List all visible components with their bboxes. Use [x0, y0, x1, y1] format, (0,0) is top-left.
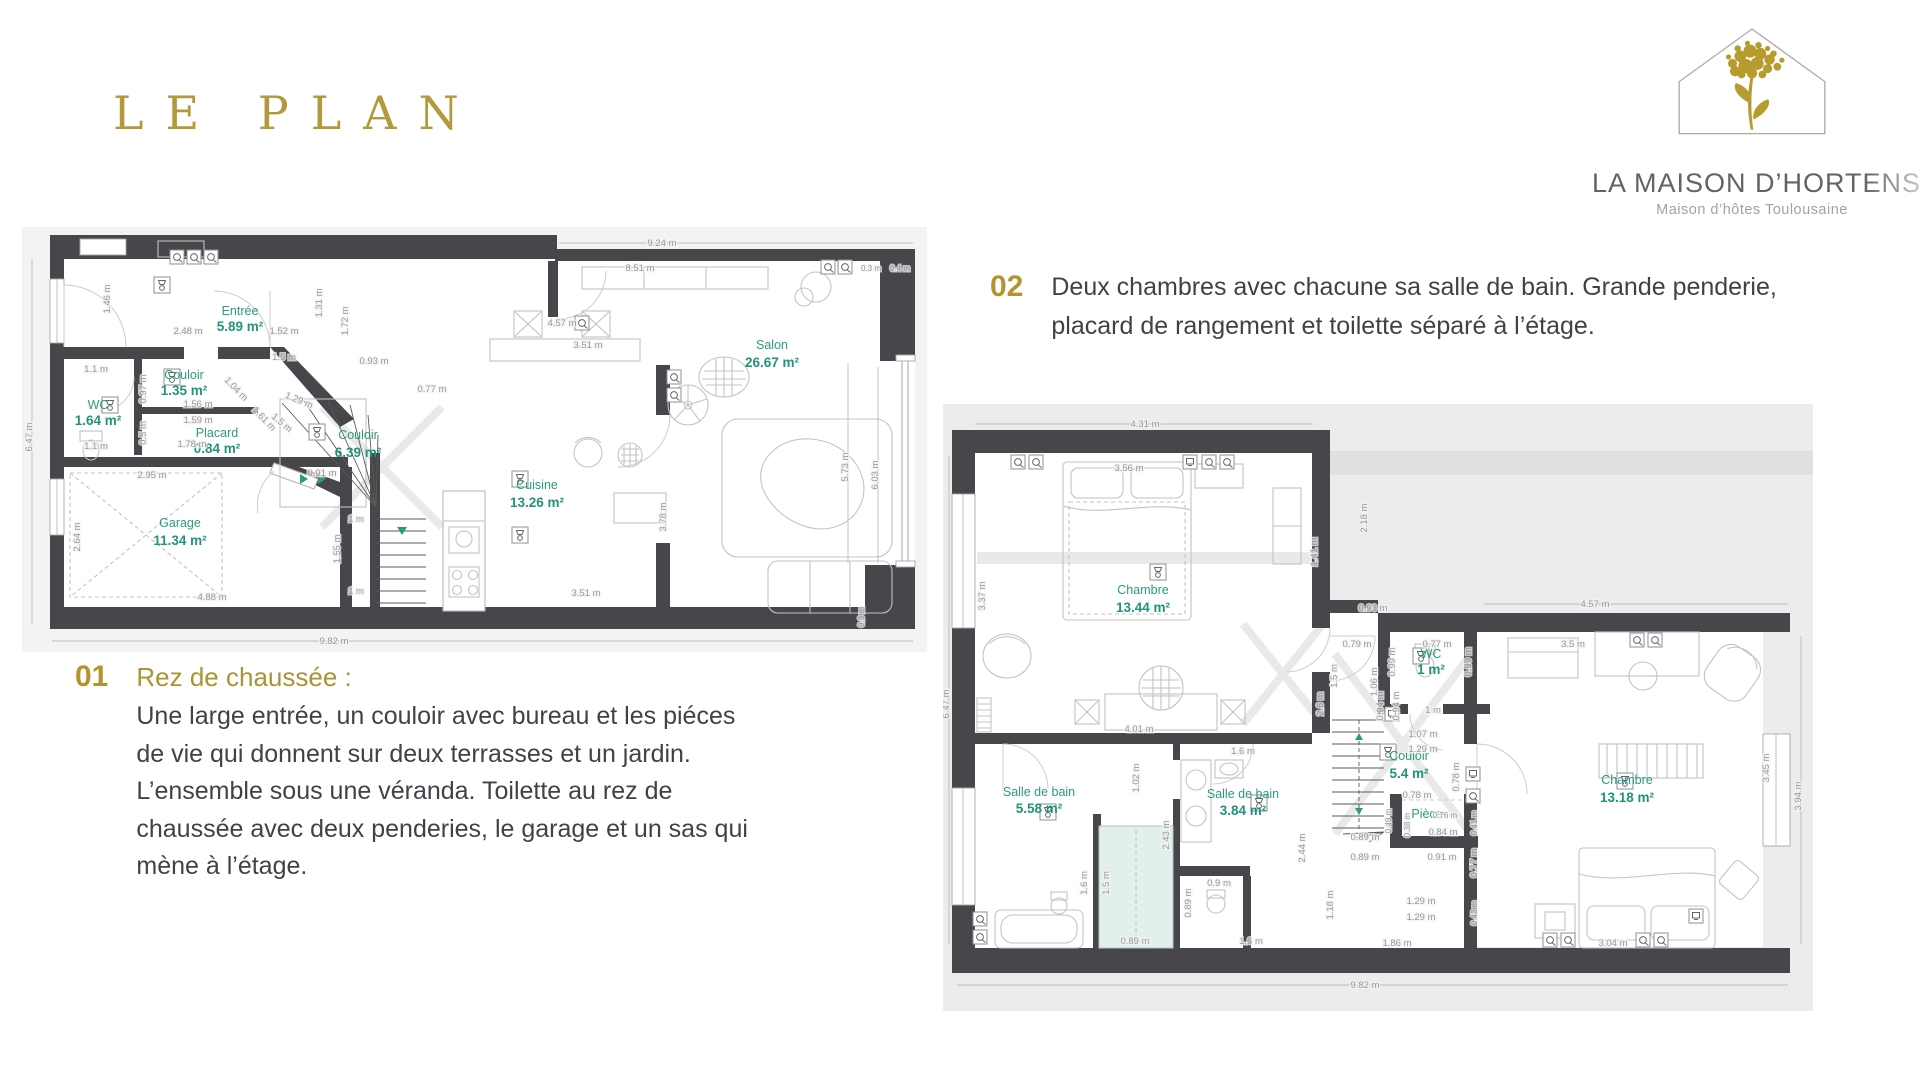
svg-text:1.64 m²: 1.64 m² [75, 413, 122, 428]
svg-text:1.6 m: 1.6 m [1231, 746, 1255, 757]
svg-text:1.46 m: 1.46 m [102, 284, 113, 313]
svg-text:2.95 m: 2.95 m [137, 470, 166, 481]
svg-text:3.94 m: 3.94 m [1793, 781, 1804, 810]
svg-text:9.82 m: 9.82 m [319, 636, 348, 647]
svg-text:Salon: Salon [756, 338, 788, 352]
outlet-icon [667, 388, 681, 402]
svg-text:4.31 m: 4.31 m [1130, 419, 1159, 430]
svg-text:9.82 m: 9.82 m [1350, 980, 1379, 991]
svg-text:0.97 m: 0.97 m [138, 374, 149, 403]
svg-text:6.03 m: 6.03 m [870, 460, 881, 489]
room-label-entree: Entrée5.89 m² [217, 304, 264, 334]
svg-text:0.84 m: 0.84 m [1428, 827, 1457, 838]
svg-text:4.57 m: 4.57 m [547, 318, 576, 329]
wicker-chair [1139, 666, 1183, 710]
svg-text:13.18 m²: 13.18 m² [1600, 790, 1655, 805]
svg-text:1.5 m: 1.5 m [272, 352, 296, 363]
svg-text:Salle de bain: Salle de bain [1003, 785, 1075, 799]
svg-text:Couloir: Couloir [164, 368, 204, 382]
svg-text:2.64 m: 2.64 m [72, 522, 83, 551]
svg-text:6.39 m²: 6.39 m² [335, 445, 382, 460]
svg-text:9.24 m: 9.24 m [647, 238, 676, 249]
svg-text:0.89 m: 0.89 m [1183, 888, 1194, 917]
svg-text:6.47 m: 6.47 m [24, 422, 35, 451]
outlet-icon [187, 250, 201, 264]
svg-text:1.31 m: 1.31 m [314, 288, 325, 317]
floor-plan-ground: Entrée5.89 m² Salon26.67 m² Couloir1.35 … [22, 227, 927, 657]
floor-plan-upstairs: Chambre13.44 m² WC1 m² Couloir5.4 m² Sal… [943, 404, 1813, 1016]
outlet-icon [575, 316, 589, 330]
svg-text:8.51 m: 8.51 m [625, 263, 654, 274]
stool [618, 443, 642, 467]
svg-text:Couloir: Couloir [338, 428, 378, 442]
outlet-icon [667, 370, 681, 384]
svg-text:5.89 m²: 5.89 m² [217, 319, 264, 334]
svg-text:Chambre: Chambre [1601, 773, 1652, 787]
svg-text:5.58 m²: 5.58 m² [1016, 801, 1063, 816]
svg-text:Garage: Garage [159, 516, 201, 530]
outlet-icon [1220, 455, 1234, 469]
outlet-icon [838, 260, 852, 274]
svg-text:1.78 m: 1.78 m [177, 439, 206, 450]
svg-text:3.51 m: 3.51 m [571, 588, 600, 599]
svg-text:1.1 m: 1.1 m [84, 364, 108, 375]
svg-text:3.51 m: 3.51 m [573, 340, 602, 351]
svg-text:Chambre: Chambre [1117, 583, 1168, 597]
kitchen-counter [443, 491, 485, 611]
svg-text:3.37 m: 3.37 m [977, 581, 988, 610]
svg-text:1.5 m: 1.5 m [1329, 664, 1340, 688]
svg-text:0.91 m: 0.91 m [1427, 852, 1456, 863]
svg-text:WC: WC [88, 398, 109, 412]
room-label-wc: WC1 m² [1417, 647, 1445, 677]
svg-text:1.52 m: 1.52 m [269, 326, 298, 337]
svg-text:1.5 m: 1.5 m [1101, 871, 1112, 895]
ceiling-light-icon [154, 277, 170, 293]
svg-text:3.56 m: 3.56 m [1114, 463, 1143, 474]
svg-text:1 m: 1 m [348, 514, 364, 525]
svg-text:2.44 m: 2.44 m [1297, 833, 1308, 862]
svg-text:5.73 m: 5.73 m [840, 452, 851, 481]
svg-text:1.6 m: 1.6 m [1239, 936, 1263, 947]
svg-text:1.29 m: 1.29 m [1406, 896, 1435, 907]
svg-text:Entrée: Entrée [222, 304, 259, 318]
ceiling-light-icon [309, 424, 325, 440]
svg-text:3.45 m: 3.45 m [1761, 753, 1772, 782]
svg-text:4.88 m: 4.88 m [197, 592, 226, 603]
svg-text:13.44 m²: 13.44 m² [1116, 600, 1171, 615]
svg-text:0.3 m: 0.3 m [857, 607, 866, 627]
svg-text:1.29 m: 1.29 m [1408, 744, 1437, 755]
svg-text:1.35 m²: 1.35 m² [161, 383, 208, 398]
svg-text:1.1 m: 1.1 m [84, 441, 108, 452]
outlet-icon [1011, 455, 1025, 469]
svg-text:1.59 m: 1.59 m [183, 415, 212, 426]
svg-text:1.07 m: 1.07 m [1408, 729, 1437, 740]
svg-text:1 m: 1 m [1425, 705, 1441, 716]
ceiling-light-icon [512, 527, 528, 543]
ceiling-light-icon [1150, 564, 1166, 580]
svg-text:1.86 m: 1.86 m [1382, 938, 1411, 949]
svg-text:11.34 m²: 11.34 m² [153, 533, 207, 548]
svg-text:1 m²: 1 m² [1417, 662, 1445, 677]
svg-text:13.26 m²: 13.26 m² [510, 495, 565, 510]
svg-text:2.48 m: 2.48 m [173, 326, 202, 337]
svg-text:0.89 m: 0.89 m [1350, 832, 1379, 843]
svg-text:26.67 m²: 26.67 m² [745, 355, 800, 370]
section-01-number: 01 [75, 658, 108, 886]
svg-text:1 m: 1 m [348, 586, 364, 597]
svg-text:4.01 m: 4.01 m [1124, 724, 1153, 735]
svg-text:1.41 m: 1.41 m [1309, 537, 1320, 566]
section-02-body: Deux chambres avec chacune sa salle de b… [1051, 268, 1850, 346]
outlet-icon [1466, 789, 1480, 803]
logo-title-fade [1864, 168, 1920, 199]
svg-text:0.89 m: 0.89 m [1350, 852, 1379, 863]
section-01: 01 Rez de chaussée : Une large entrée, u… [75, 658, 775, 886]
outlet-icon [1029, 455, 1043, 469]
svg-text:Placard: Placard [196, 426, 238, 440]
page-title: LE PLAN [113, 86, 481, 140]
svg-text:1.29 m: 1.29 m [1406, 912, 1435, 923]
logo: LA MAISON D’HORTENSE Maison d’hôtes Toul… [1592, 2, 1912, 218]
svg-text:0.77 m: 0.77 m [1422, 639, 1451, 650]
room-label-couloir-1: Couloir1.35 m² [161, 368, 208, 398]
svg-text:0.3 m: 0.3 m [861, 264, 881, 273]
logo-house-flower-icon [1674, 2, 1830, 160]
svg-text:0.49 m: 0.49 m [1384, 808, 1393, 833]
outlet-icon [204, 250, 218, 264]
svg-text:3.04 m: 3.04 m [1598, 938, 1627, 949]
device-icon [1689, 909, 1703, 923]
logo-subtitle: Maison d’hôtes Toulousaine [1592, 202, 1912, 218]
svg-text:0.78 m: 0.78 m [1402, 790, 1431, 801]
device-icon [1466, 767, 1480, 781]
svg-text:3.5 m: 3.5 m [1561, 639, 1585, 650]
svg-text:1.55 m: 1.55 m [332, 534, 343, 563]
svg-text:4.57 m: 4.57 m [1580, 599, 1609, 610]
outlet-icon [170, 250, 184, 264]
svg-text:0.79 m: 0.79 m [1342, 639, 1371, 650]
svg-text:0.93 m: 0.93 m [1358, 603, 1387, 614]
svg-text:1.18 m: 1.18 m [1325, 890, 1336, 919]
svg-text:0.38 m: 0.38 m [1403, 812, 1412, 837]
hydrangea-flower [1726, 41, 1785, 130]
section-01-heading: Rez de chaussée : [136, 658, 748, 696]
outlet-icon [1202, 455, 1216, 469]
svg-text:2.6 m: 2.6 m [1315, 692, 1326, 716]
svg-text:0.99 m: 0.99 m [1387, 647, 1398, 676]
svg-text:0.5 m: 0.5 m [138, 421, 149, 445]
outlet-icon [1654, 933, 1668, 947]
svg-text:0.99 m: 0.99 m [1463, 647, 1474, 676]
svg-text:2.43 m: 2.43 m [1161, 820, 1172, 849]
svg-text:0.41 m: 0.41 m [1470, 810, 1479, 835]
svg-text:0.91 m: 0.91 m [307, 468, 336, 479]
svg-text:2.18 m: 2.18 m [1359, 503, 1370, 532]
svg-text:1.72 m: 1.72 m [340, 306, 351, 335]
section-01-body: Une large entrée, un couloir avec bureau… [136, 698, 748, 886]
svg-text:0.77 m: 0.77 m [1469, 848, 1480, 877]
svg-text:0.76 m: 0.76 m [1433, 811, 1458, 820]
svg-text:0.42 m: 0.42 m [1470, 900, 1479, 925]
svg-text:0.78 m: 0.78 m [1451, 762, 1462, 791]
svg-text:3.78 m: 3.78 m [658, 502, 669, 531]
background-band [1330, 451, 1813, 475]
outlet-icon [1543, 933, 1557, 947]
outlet-icon [1561, 933, 1575, 947]
svg-text:0.4 m: 0.4 m [890, 264, 910, 273]
device-icon [1183, 455, 1197, 469]
svg-text:3.84 m²: 3.84 m² [1220, 803, 1267, 818]
outlet-icon [973, 912, 987, 926]
svg-text:0.9 m: 0.9 m [1207, 878, 1231, 889]
outlet-icon [1630, 633, 1644, 647]
svg-text:Salle de bain: Salle de bain [1207, 787, 1279, 801]
svg-text:0.77 m: 0.77 m [417, 384, 446, 395]
svg-text:5.4 m²: 5.4 m² [1389, 766, 1429, 781]
outlet-icon [973, 930, 987, 944]
svg-text:Cuisine: Cuisine [516, 478, 558, 492]
svg-text:6.47 m: 6.47 m [943, 689, 952, 718]
svg-text:1.6 m: 1.6 m [1079, 871, 1090, 895]
section-02-number: 02 [990, 268, 1023, 346]
svg-text:0.89 m: 0.89 m [1120, 936, 1149, 947]
svg-text:0.94 m: 0.94 m [1375, 691, 1386, 720]
svg-text:1.02 m: 1.02 m [1131, 763, 1142, 792]
outlet-icon [1648, 633, 1662, 647]
outlet-icon [821, 260, 835, 274]
section-02: 02 Deux chambres avec chacune sa salle d… [990, 268, 1850, 346]
svg-text:1.56 m: 1.56 m [183, 399, 212, 410]
outlet-icon [1636, 933, 1650, 947]
svg-text:0.94 m: 0.94 m [1391, 691, 1402, 720]
svg-text:0.93 m: 0.93 m [359, 356, 388, 367]
